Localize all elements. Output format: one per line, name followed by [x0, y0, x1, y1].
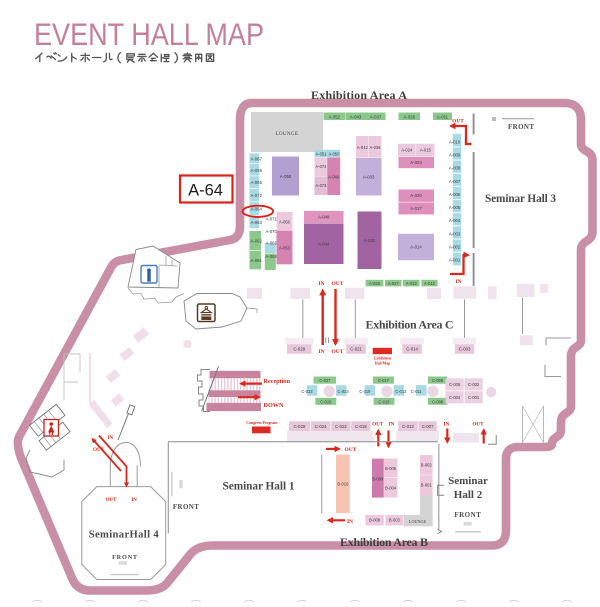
svg-text:FRONT: FRONT: [173, 503, 199, 511]
svg-text:C-009: C-009: [432, 378, 444, 383]
svg-text:Exhibition Area C: Exhibition Area C: [366, 317, 454, 331]
svg-text:A-051: A-051: [316, 151, 328, 156]
svg-text:A-048: A-048: [318, 215, 330, 220]
svg-text:C-018: C-018: [355, 424, 367, 429]
svg-text:B-004: B-004: [385, 486, 397, 491]
svg-text:A-020: A-020: [410, 193, 422, 198]
svg-text:A-001: A-001: [449, 258, 461, 263]
svg-text:Seminar: Seminar: [448, 475, 488, 487]
svg-text:IN: IN: [389, 421, 395, 427]
svg-text:A-013: A-013: [406, 281, 418, 286]
svg-text:Congress Program: Congress Program: [246, 421, 278, 425]
svg-text:SeminarHall 4: SeminarHall 4: [89, 529, 160, 540]
svg-text:C-006: C-006: [449, 382, 461, 387]
svg-text:OUT: OUT: [332, 349, 344, 355]
svg-text:A-024: A-024: [401, 148, 413, 153]
svg-text:C-019: C-019: [359, 389, 371, 394]
svg-text:A-008: A-008: [449, 166, 461, 171]
svg-text:A-053: A-053: [279, 246, 291, 251]
svg-text:A-037: A-037: [370, 114, 382, 119]
svg-text:C-016: C-016: [378, 399, 390, 404]
svg-text:A-049: A-049: [328, 175, 340, 180]
svg-text:C-001: C-001: [468, 395, 480, 400]
svg-text:FRONT: FRONT: [508, 123, 534, 131]
svg-text:A-071: A-071: [266, 217, 278, 222]
svg-text:A-056: A-056: [279, 220, 291, 225]
svg-text:A-64: A-64: [188, 182, 223, 200]
svg-text:A-012: A-012: [424, 281, 436, 286]
svg-text:C-028: C-028: [294, 424, 306, 429]
svg-text:IN: IN: [318, 281, 324, 287]
svg-text:A-006: A-006: [449, 192, 461, 197]
svg-text:C-003: C-003: [459, 347, 471, 352]
svg-text:A-064: A-064: [251, 207, 263, 212]
svg-text:A-002: A-002: [449, 245, 461, 250]
svg-text:B-001: B-001: [421, 483, 433, 488]
svg-text:A-073: A-073: [316, 183, 328, 188]
svg-text:B-008: B-008: [369, 518, 381, 523]
svg-text:C-033: C-033: [301, 389, 313, 394]
svg-text:DOWN: DOWN: [264, 402, 284, 409]
svg-text:C-007: C-007: [422, 424, 434, 429]
svg-text:IN: IN: [456, 279, 462, 285]
svg-text:A-010: A-010: [449, 139, 461, 144]
svg-text:C-024: C-024: [315, 424, 327, 429]
svg-text:FRONT: FRONT: [112, 554, 138, 561]
svg-text:C-026: C-026: [320, 399, 332, 404]
svg-text:C-023: C-023: [338, 389, 350, 394]
svg-text:A-005: A-005: [449, 205, 461, 210]
svg-text:A-069: A-069: [266, 241, 278, 246]
svg-text:C-029: C-029: [293, 347, 305, 352]
svg-text:C-013: C-013: [395, 389, 407, 394]
svg-text:C-004: C-004: [449, 395, 461, 400]
svg-text:C-027: C-027: [319, 378, 331, 383]
svg-text:IN: IN: [347, 519, 353, 525]
svg-text:A-061: A-061: [251, 258, 263, 263]
svg-text:A-011: A-011: [437, 114, 449, 119]
svg-text:A-068: A-068: [266, 254, 278, 259]
svg-text:OUT: OUT: [93, 448, 105, 453]
svg-text:A-043: A-043: [350, 114, 362, 119]
svg-text:C-012: C-012: [402, 424, 414, 429]
svg-text:C-022: C-022: [335, 424, 347, 429]
svg-text:A-065: A-065: [251, 180, 263, 185]
svg-text:Seminar Hall 1: Seminar Hall 1: [223, 480, 295, 492]
svg-text:OUT: OUT: [106, 498, 118, 503]
svg-text:A-044: A-044: [318, 242, 330, 247]
svg-text:B-016: B-016: [337, 482, 349, 487]
svg-text:A-042: A-042: [357, 145, 369, 150]
svg-text:A-003: A-003: [449, 231, 461, 236]
svg-text:LOUNGE: LOUNGE: [276, 132, 299, 137]
svg-text:A-017: A-017: [410, 206, 422, 211]
svg-text:C-011: C-011: [411, 389, 423, 394]
svg-text:OUT: OUT: [452, 118, 464, 124]
svg-text:IN: IN: [108, 436, 114, 441]
svg-text:Exhibition Area A: Exhibition Area A: [311, 88, 407, 102]
svg-text:C-002: C-002: [468, 382, 480, 387]
svg-text:OUT: OUT: [345, 447, 357, 453]
svg-text:A-028: A-028: [369, 281, 381, 286]
svg-text:A-009: A-009: [449, 152, 461, 157]
svg-text:A-032: A-032: [364, 238, 376, 243]
svg-text:B-003: B-003: [389, 518, 401, 523]
svg-text:FRONT: FRONT: [454, 511, 481, 519]
svg-text:A-072: A-072: [251, 193, 263, 198]
svg-text:A-063: A-063: [251, 220, 263, 225]
svg-text:B-005: B-005: [385, 466, 397, 471]
svg-text:A-056: A-056: [251, 168, 263, 173]
svg-text:A-033: A-033: [363, 175, 375, 180]
svg-text:A-014: A-014: [410, 245, 422, 250]
svg-text:A-062: A-062: [251, 239, 263, 244]
svg-text:C-021: C-021: [350, 347, 362, 352]
svg-text:LOUNGE: LOUNGE: [409, 519, 427, 524]
svg-text:OUT: OUT: [332, 281, 344, 287]
svg-text:Reception: Reception: [264, 378, 291, 385]
svg-text:OUT: OUT: [372, 421, 384, 427]
svg-text:A-026: A-026: [404, 114, 416, 119]
svg-text:Exhibition Area B: Exhibition Area B: [340, 535, 428, 549]
svg-text:Seminar Hall 3: Seminar Hall 3: [485, 193, 556, 205]
svg-text:A-058: A-058: [280, 174, 292, 179]
svg-text:C-017: C-017: [378, 378, 390, 383]
svg-text:OUT: OUT: [472, 421, 484, 427]
svg-text:C-008: C-008: [432, 399, 444, 404]
svg-text:B-009: B-009: [372, 477, 384, 482]
svg-text:A-027: A-027: [388, 281, 400, 286]
svg-text:A-015: A-015: [420, 148, 432, 153]
svg-text:B-002: B-002: [421, 463, 433, 468]
svg-text:Hall Map: Hall Map: [375, 361, 391, 365]
svg-text:A-067: A-067: [251, 156, 263, 161]
svg-text:A-050: A-050: [329, 151, 341, 156]
svg-text:A-007: A-007: [449, 179, 461, 184]
svg-text:A-070: A-070: [266, 229, 278, 234]
svg-text:IN: IN: [318, 349, 324, 355]
svg-text:A-004: A-004: [449, 218, 461, 223]
svg-text:EVENT HALL MAP: EVENT HALL MAP: [34, 16, 264, 52]
svg-text:Exhibition: Exhibition: [374, 357, 392, 361]
svg-text:A-074: A-074: [316, 164, 328, 169]
svg-text:IN: IN: [444, 421, 450, 427]
svg-text:Hall 2: Hall 2: [454, 489, 483, 501]
svg-text:A-023: A-023: [410, 160, 422, 165]
svg-text:A-052: A-052: [329, 114, 341, 119]
svg-text:C-014: C-014: [406, 347, 418, 352]
svg-text:IN: IN: [131, 498, 137, 503]
svg-text:A-036: A-036: [370, 145, 382, 150]
